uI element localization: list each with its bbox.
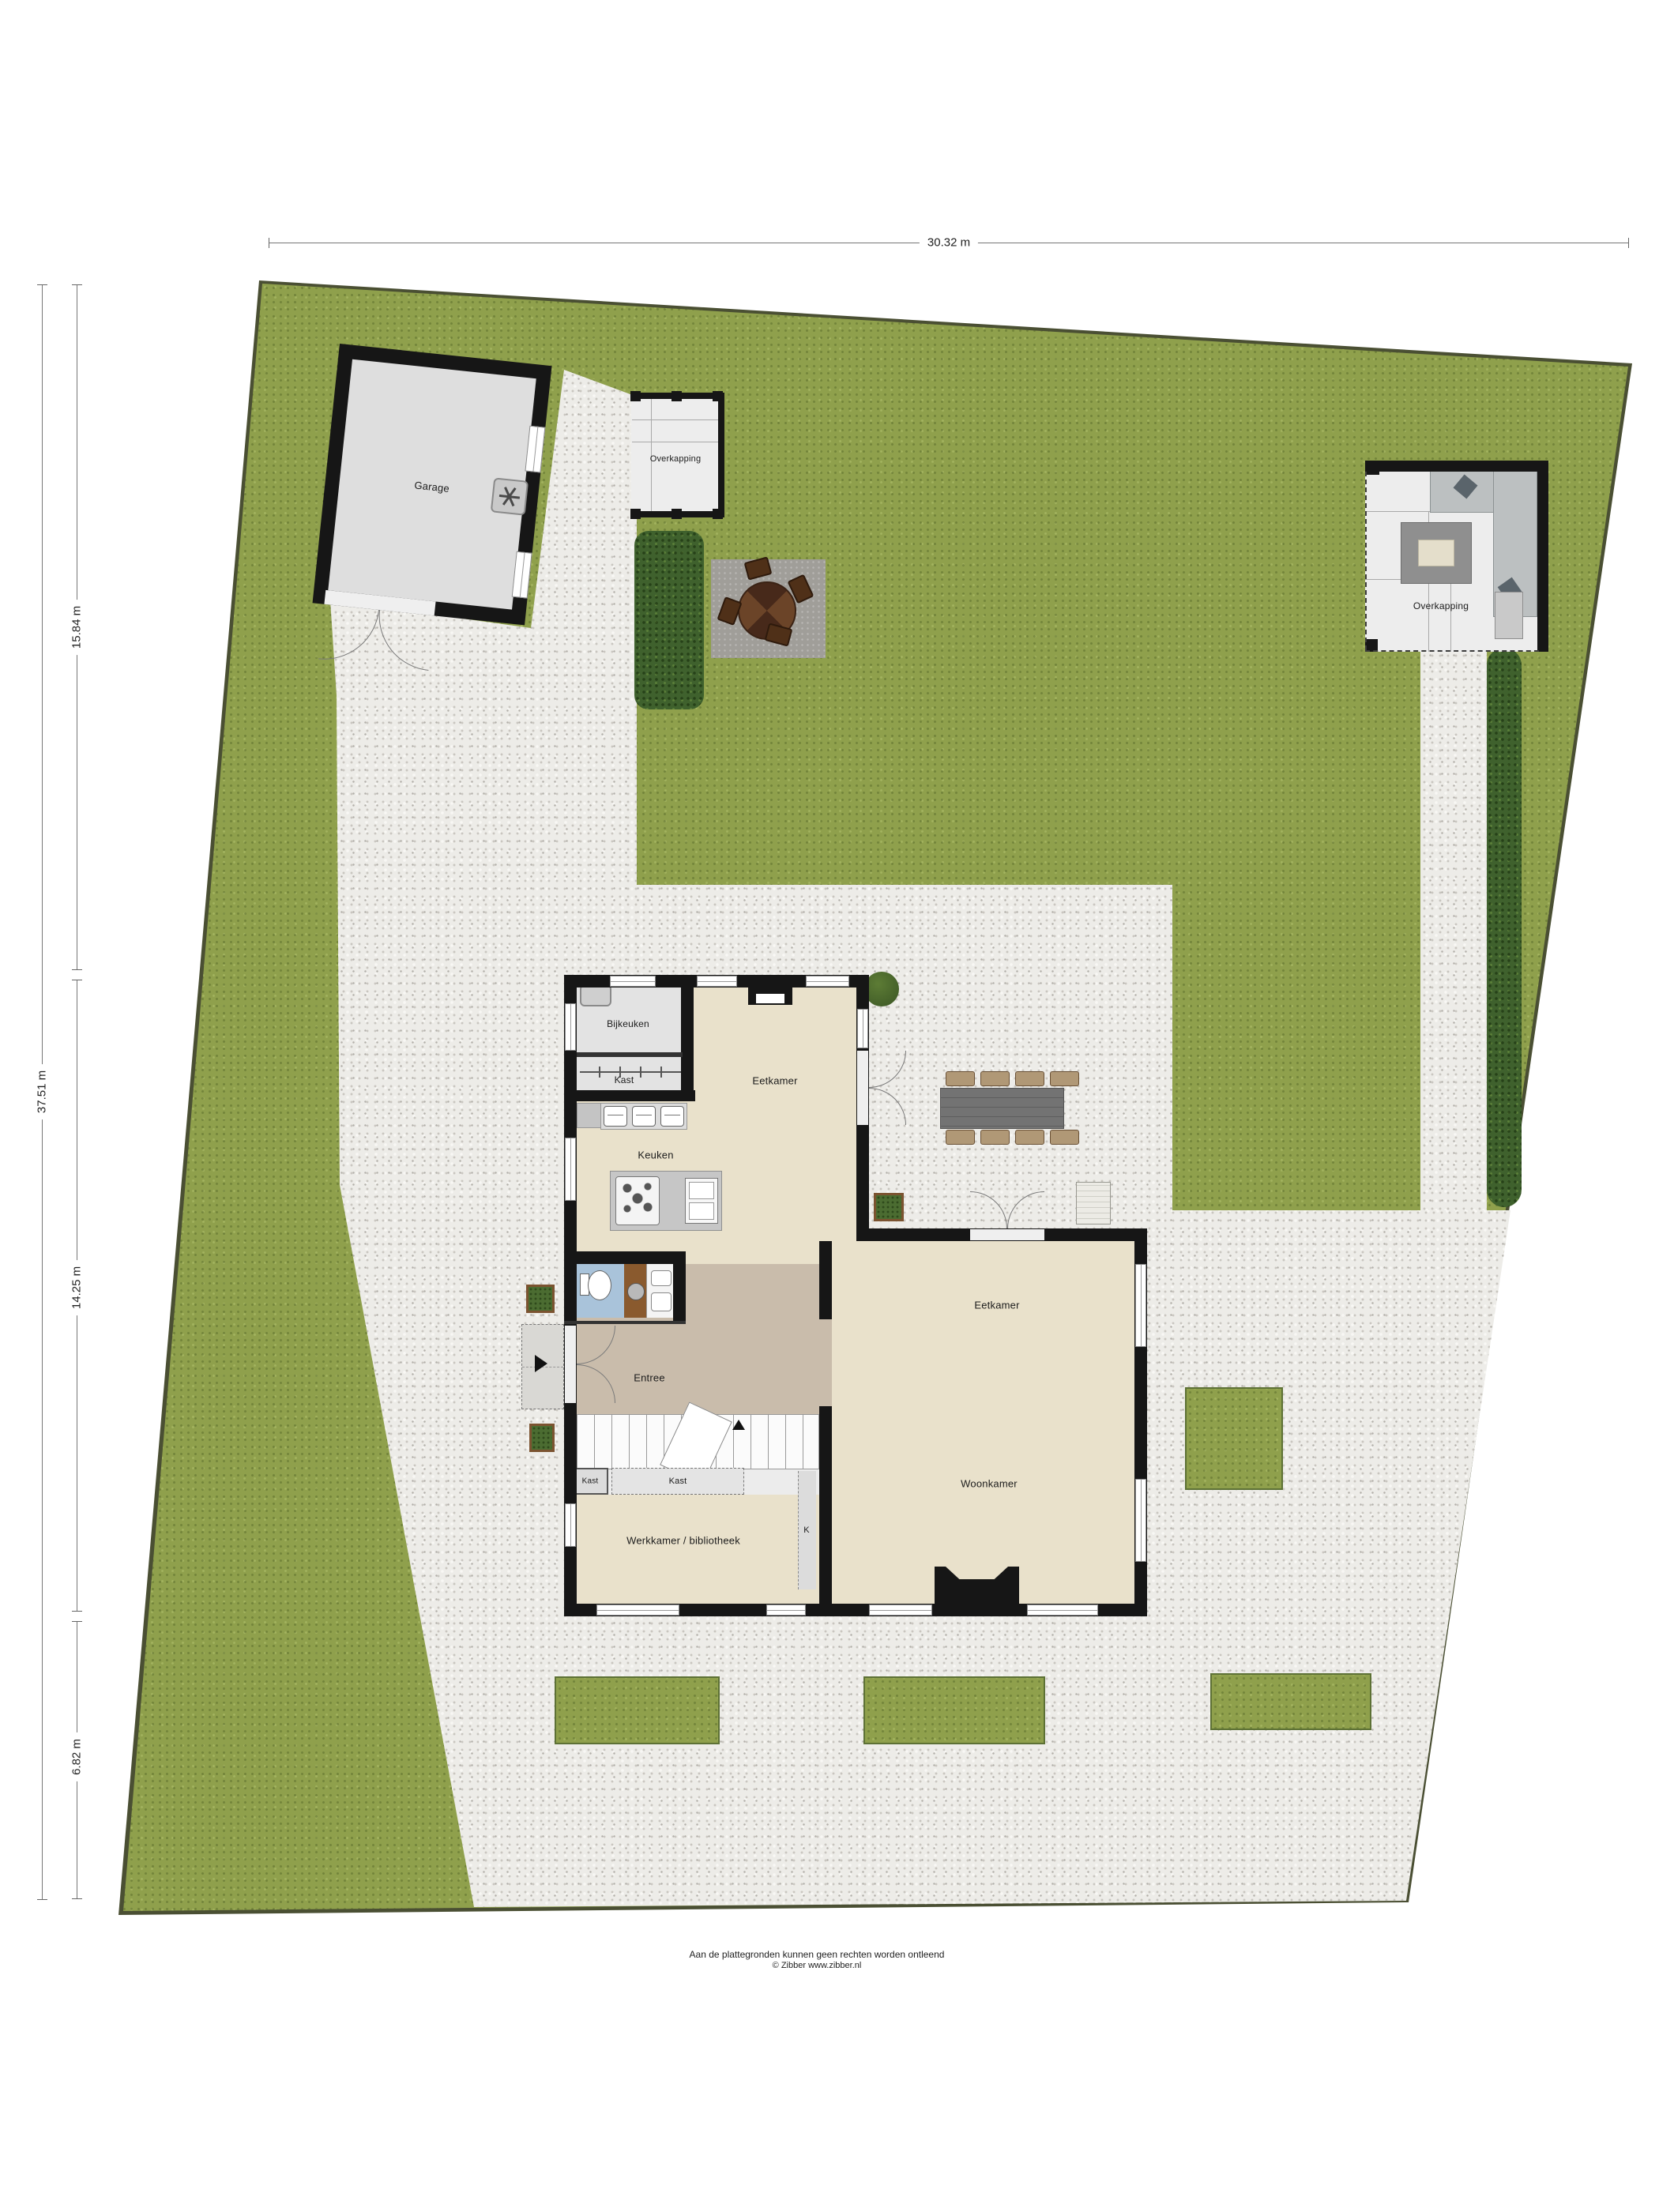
kitchen-island (610, 1171, 722, 1231)
dimension-left-segment-1: 15.84 m (71, 284, 82, 970)
front-door-opening (565, 1326, 576, 1403)
wall (673, 1251, 686, 1324)
wall (819, 1241, 832, 1319)
wall (564, 1251, 686, 1264)
hedge-right (1487, 648, 1522, 1207)
wall (577, 1090, 695, 1101)
planter-box (526, 1285, 555, 1313)
overkapping-right: Overkapping (1365, 461, 1548, 652)
footer-credit: © Zibber www.zibber.nl (422, 1961, 1212, 1970)
dimension-top-label: 30.32 m (920, 236, 978, 250)
vanity-icon (624, 1264, 646, 1318)
dimension-total-label: 37.51 m (33, 1064, 51, 1119)
washer-icon (580, 984, 611, 1006)
site-plan: Garage Overkapping (0, 0, 1659, 2212)
oven-icon (604, 1106, 627, 1127)
dimension-left-total: 37.51 m (36, 284, 47, 1900)
window (1027, 1604, 1098, 1616)
room-label-kast-k: K (803, 1525, 810, 1535)
dimension-segment-3-label: 6.82 m (68, 1732, 86, 1781)
room-label-eetkamer-top: Eetkamer (752, 1075, 797, 1087)
window (565, 1003, 576, 1051)
staircase (577, 1414, 819, 1469)
room-label-entree: Entree (634, 1372, 665, 1384)
fire-table-icon (1401, 522, 1472, 584)
stairs-arrow-icon (732, 1420, 745, 1430)
room-label-werkkamer: Werkkamer / bibliotheek (626, 1535, 740, 1547)
dimension-top: 30.32 m (269, 234, 1629, 251)
garden-chair-icon (717, 596, 742, 626)
window (1135, 1479, 1146, 1562)
window (869, 1604, 932, 1616)
kitchen-counter (577, 1103, 602, 1128)
overkapping-right-label: Overkapping (1413, 600, 1469, 611)
oven-icon (632, 1106, 656, 1127)
patio-pad (711, 559, 826, 658)
overkapping-left-label: Overkapping (650, 454, 702, 464)
wall (564, 1321, 686, 1324)
gravel-path-right (1420, 644, 1487, 1210)
dining-door-opening (857, 1051, 868, 1125)
dimension-segment-1-label: 15.84 m (68, 600, 86, 655)
side-cabinet-icon (1495, 592, 1523, 639)
toilet-icon (588, 1270, 611, 1300)
floor-werkkamer (577, 1495, 819, 1604)
window (857, 1009, 868, 1048)
room-label-kast-small: Kast (582, 1477, 599, 1486)
hall-cabinet-icon (646, 1264, 674, 1318)
window (766, 1604, 806, 1616)
wall (577, 1052, 683, 1057)
window (610, 976, 656, 987)
room-label-keuken: Keuken (638, 1149, 673, 1161)
hedge-left (634, 531, 704, 709)
garden-chair-icon (744, 556, 773, 580)
garden-bed-middle (863, 1676, 1045, 1744)
window (565, 1503, 576, 1547)
footer-disclaimer: Aan de plattegronden kunnen geen rechten… (422, 1949, 1212, 1960)
planter-box (529, 1424, 555, 1452)
stove-icon (615, 1176, 660, 1225)
window (596, 1604, 679, 1616)
window (697, 976, 737, 987)
house: Bijkeuken Kast Eetkamer Keuken Entree Ka… (564, 975, 1147, 1616)
dimension-left-segment-3: 6.82 m (71, 1621, 82, 1899)
garage: Garage (313, 344, 552, 625)
dimension-segment-2-label: 14.25 m (68, 1260, 86, 1315)
wall (819, 1406, 832, 1604)
window (565, 1138, 576, 1201)
room-label-woonkamer: Woonkamer (961, 1478, 1018, 1490)
wall (681, 975, 694, 1101)
room-label-kast-top: Kast (615, 1074, 634, 1085)
window (1135, 1264, 1146, 1347)
entrance-porch (521, 1324, 564, 1409)
terrace-door-opening (970, 1229, 1044, 1240)
garden-bed-right (1210, 1673, 1371, 1730)
overkapping-left: Overkapping (630, 393, 724, 519)
garden-bed-square (1185, 1387, 1283, 1490)
sink-icon (685, 1178, 718, 1224)
entrance-arrow-icon (535, 1355, 547, 1372)
oven-icon (660, 1106, 684, 1127)
room-label-bijkeuken: Bijkeuken (607, 1018, 649, 1029)
window (806, 976, 849, 987)
footer: Aan de plattegronden kunnen geen rechten… (422, 1948, 1212, 1971)
dimension-left-segment-2: 14.25 m (71, 980, 82, 1612)
garden-bed-left (555, 1676, 720, 1744)
room-label-kast-middle: Kast (669, 1477, 687, 1486)
room-label-eetkamer: Eetkamer (974, 1300, 1019, 1311)
boiler-icon (491, 477, 529, 515)
floor-wc (577, 1264, 624, 1318)
floor-living-room (832, 1241, 1134, 1604)
